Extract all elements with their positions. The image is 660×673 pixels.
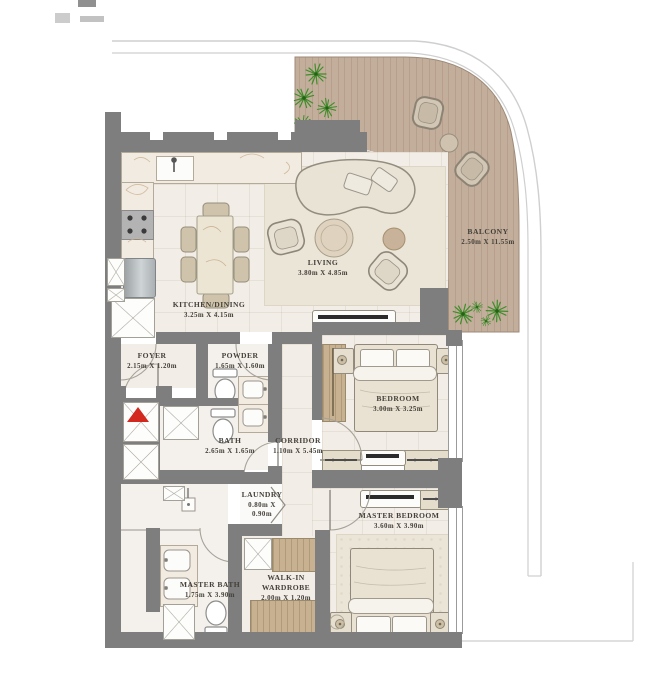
wall-segment	[268, 344, 282, 442]
wall-segment	[146, 528, 160, 612]
armchair	[266, 217, 307, 256]
room-name: LIVING	[308, 258, 339, 268]
kitchen-cabinet-unit	[111, 298, 155, 338]
room-label-walkin-wardrobe: WALK-IN WARDROBE 2.00m X 1.20m	[258, 573, 314, 603]
room-dims: 2.15m X 1.20m	[127, 362, 177, 371]
wall-segment	[315, 530, 330, 634]
room-label-bedroom: BEDROOM 3.00m X 3.25m	[373, 394, 423, 414]
stove-burners	[127, 215, 146, 233]
armchair	[365, 248, 412, 294]
wall-segment	[446, 330, 462, 346]
wall-segment	[438, 458, 462, 508]
walkin-entry-cabinet	[244, 538, 272, 570]
service-shaft	[123, 444, 159, 480]
dining-set	[181, 203, 249, 308]
room-dims: 3.80m X 4.85m	[298, 269, 348, 278]
bedroom-window	[448, 340, 463, 462]
room-dims: 3.25m X 4.15m	[184, 311, 234, 320]
room-label-master-bedroom: MASTER BEDROOM 3.60m X 3.90m	[359, 511, 440, 531]
window-notch	[150, 132, 163, 140]
wall-segment	[295, 120, 360, 152]
side-table	[383, 228, 405, 250]
master-shower	[163, 604, 195, 640]
room-dims: 2.65m X 1.65m	[205, 447, 255, 456]
service-shaft	[163, 486, 185, 501]
window-notch	[278, 132, 291, 140]
wall-segment	[228, 472, 282, 484]
master-toilet	[205, 601, 227, 635]
room-dims: 1.65m X 1.60m	[215, 362, 265, 371]
room-dims: 2.50m X 11.55m	[461, 238, 514, 247]
living-sofa	[296, 160, 415, 215]
room-name: LAUNDRY	[242, 490, 283, 500]
room-name: FOYER	[138, 351, 167, 361]
wall-segment	[105, 386, 126, 400]
room-label-corridor: CORRIDOR 1.10m X 5.45m	[273, 436, 323, 456]
master-bedroom-window	[448, 506, 463, 634]
room-name: KITCHEN/DINING	[173, 300, 246, 310]
wall-pillar	[420, 288, 448, 335]
service-shaft	[107, 258, 125, 286]
wall-segment	[228, 524, 282, 536]
room-label-kitchen-dining: KITCHEN/DINING 3.25m X 4.15m	[173, 300, 246, 320]
room-label-bath: BATH 2.65m X 1.65m	[205, 436, 255, 456]
window-notch	[214, 132, 227, 140]
room-name: BEDROOM	[376, 394, 419, 404]
service-shaft	[107, 288, 125, 302]
entrance-marker	[127, 407, 149, 422]
room-name: POWDER	[222, 351, 259, 361]
room-dims: 1.75m X 3.90m	[185, 591, 235, 600]
room-label-powder: POWDER 1.65m X 1.60m	[215, 351, 265, 371]
plan-overlay	[0, 0, 660, 673]
room-dims: 0.80m X 0.90m	[244, 501, 280, 519]
room-dims: 3.60m X 3.90m	[374, 522, 424, 531]
wall-segment	[196, 336, 208, 404]
wall-segment	[160, 398, 238, 406]
room-name: BALCONY	[467, 227, 508, 237]
floor-plan: KITCHEN/DINING 3.25m X 4.15m LIVING 3.80…	[0, 0, 660, 673]
wall-segment	[312, 322, 322, 420]
room-name: MASTER BATH	[180, 580, 240, 590]
room-label-master-bath: MASTER BATH 1.75m X 3.90m	[180, 580, 240, 600]
wall-segment	[272, 332, 312, 344]
room-label-balcony: BALCONY 2.50m X 11.55m	[461, 227, 514, 247]
wall-segment	[105, 632, 462, 648]
room-dims: 3.00m X 3.25m	[373, 405, 423, 414]
room-name: BATH	[219, 436, 242, 446]
room-dims: 1.10m X 5.45m	[273, 447, 323, 456]
room-name: WALK-IN WARDROBE	[258, 573, 314, 593]
kitchen-faucet	[172, 158, 176, 172]
room-label-living: LIVING 3.80m X 4.85m	[298, 258, 348, 278]
room-label-foyer: FOYER 2.15m X 1.20m	[127, 351, 177, 371]
room-label-laundry: LAUNDRY 0.80m X 0.90m	[244, 490, 280, 519]
bath-shower	[163, 406, 199, 440]
room-dims: 2.00m X 1.20m	[261, 594, 311, 603]
master-shower-area	[121, 488, 200, 530]
room-name: MASTER BEDROOM	[359, 511, 440, 521]
wall-segment	[105, 112, 121, 648]
room-name: CORRIDOR	[275, 436, 321, 446]
